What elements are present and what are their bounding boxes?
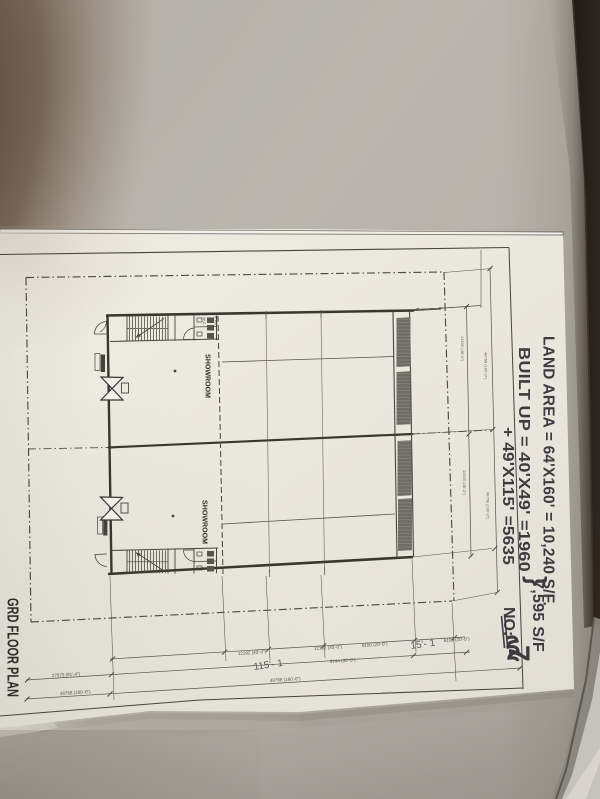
svg-text:7,595 S/F: 7,595 S/F [529,580,546,652]
svg-text:14630 (48'-0"): 14630 (48'-0") [462,470,467,496]
svg-text:48768 (160'-0"): 48768 (160'-0") [486,492,491,520]
svg-text:+ 49'X115' =5635: + 49'X115' =5635 [499,427,516,565]
svg-text:LAND AREA = 64'X160' = 10,240: LAND AREA = 64'X160' = 10,240 S/F. [540,336,557,606]
svg-text:BUILT UP = 40'X49' =1960: BUILT UP = 40'X49' =1960 [515,347,532,572]
svg-text:14630 (48'-0"): 14630 (48'-0") [460,336,465,362]
svg-text:SHOWROOM: SHOWROOM [201,500,210,544]
svg-text:7: 7 [502,645,535,662]
svg-text:GRD FLOOR PLAN: GRD FLOOR PLAN [4,598,21,697]
svg-text:W.C.: W.C. [202,317,207,326]
svg-text:48768 (160'-0"): 48768 (160'-0") [484,352,489,380]
svg-text:SHOWROOM: SHOWROOM [204,354,213,398]
svg-text:8'X6': 8'X6' [214,316,219,326]
